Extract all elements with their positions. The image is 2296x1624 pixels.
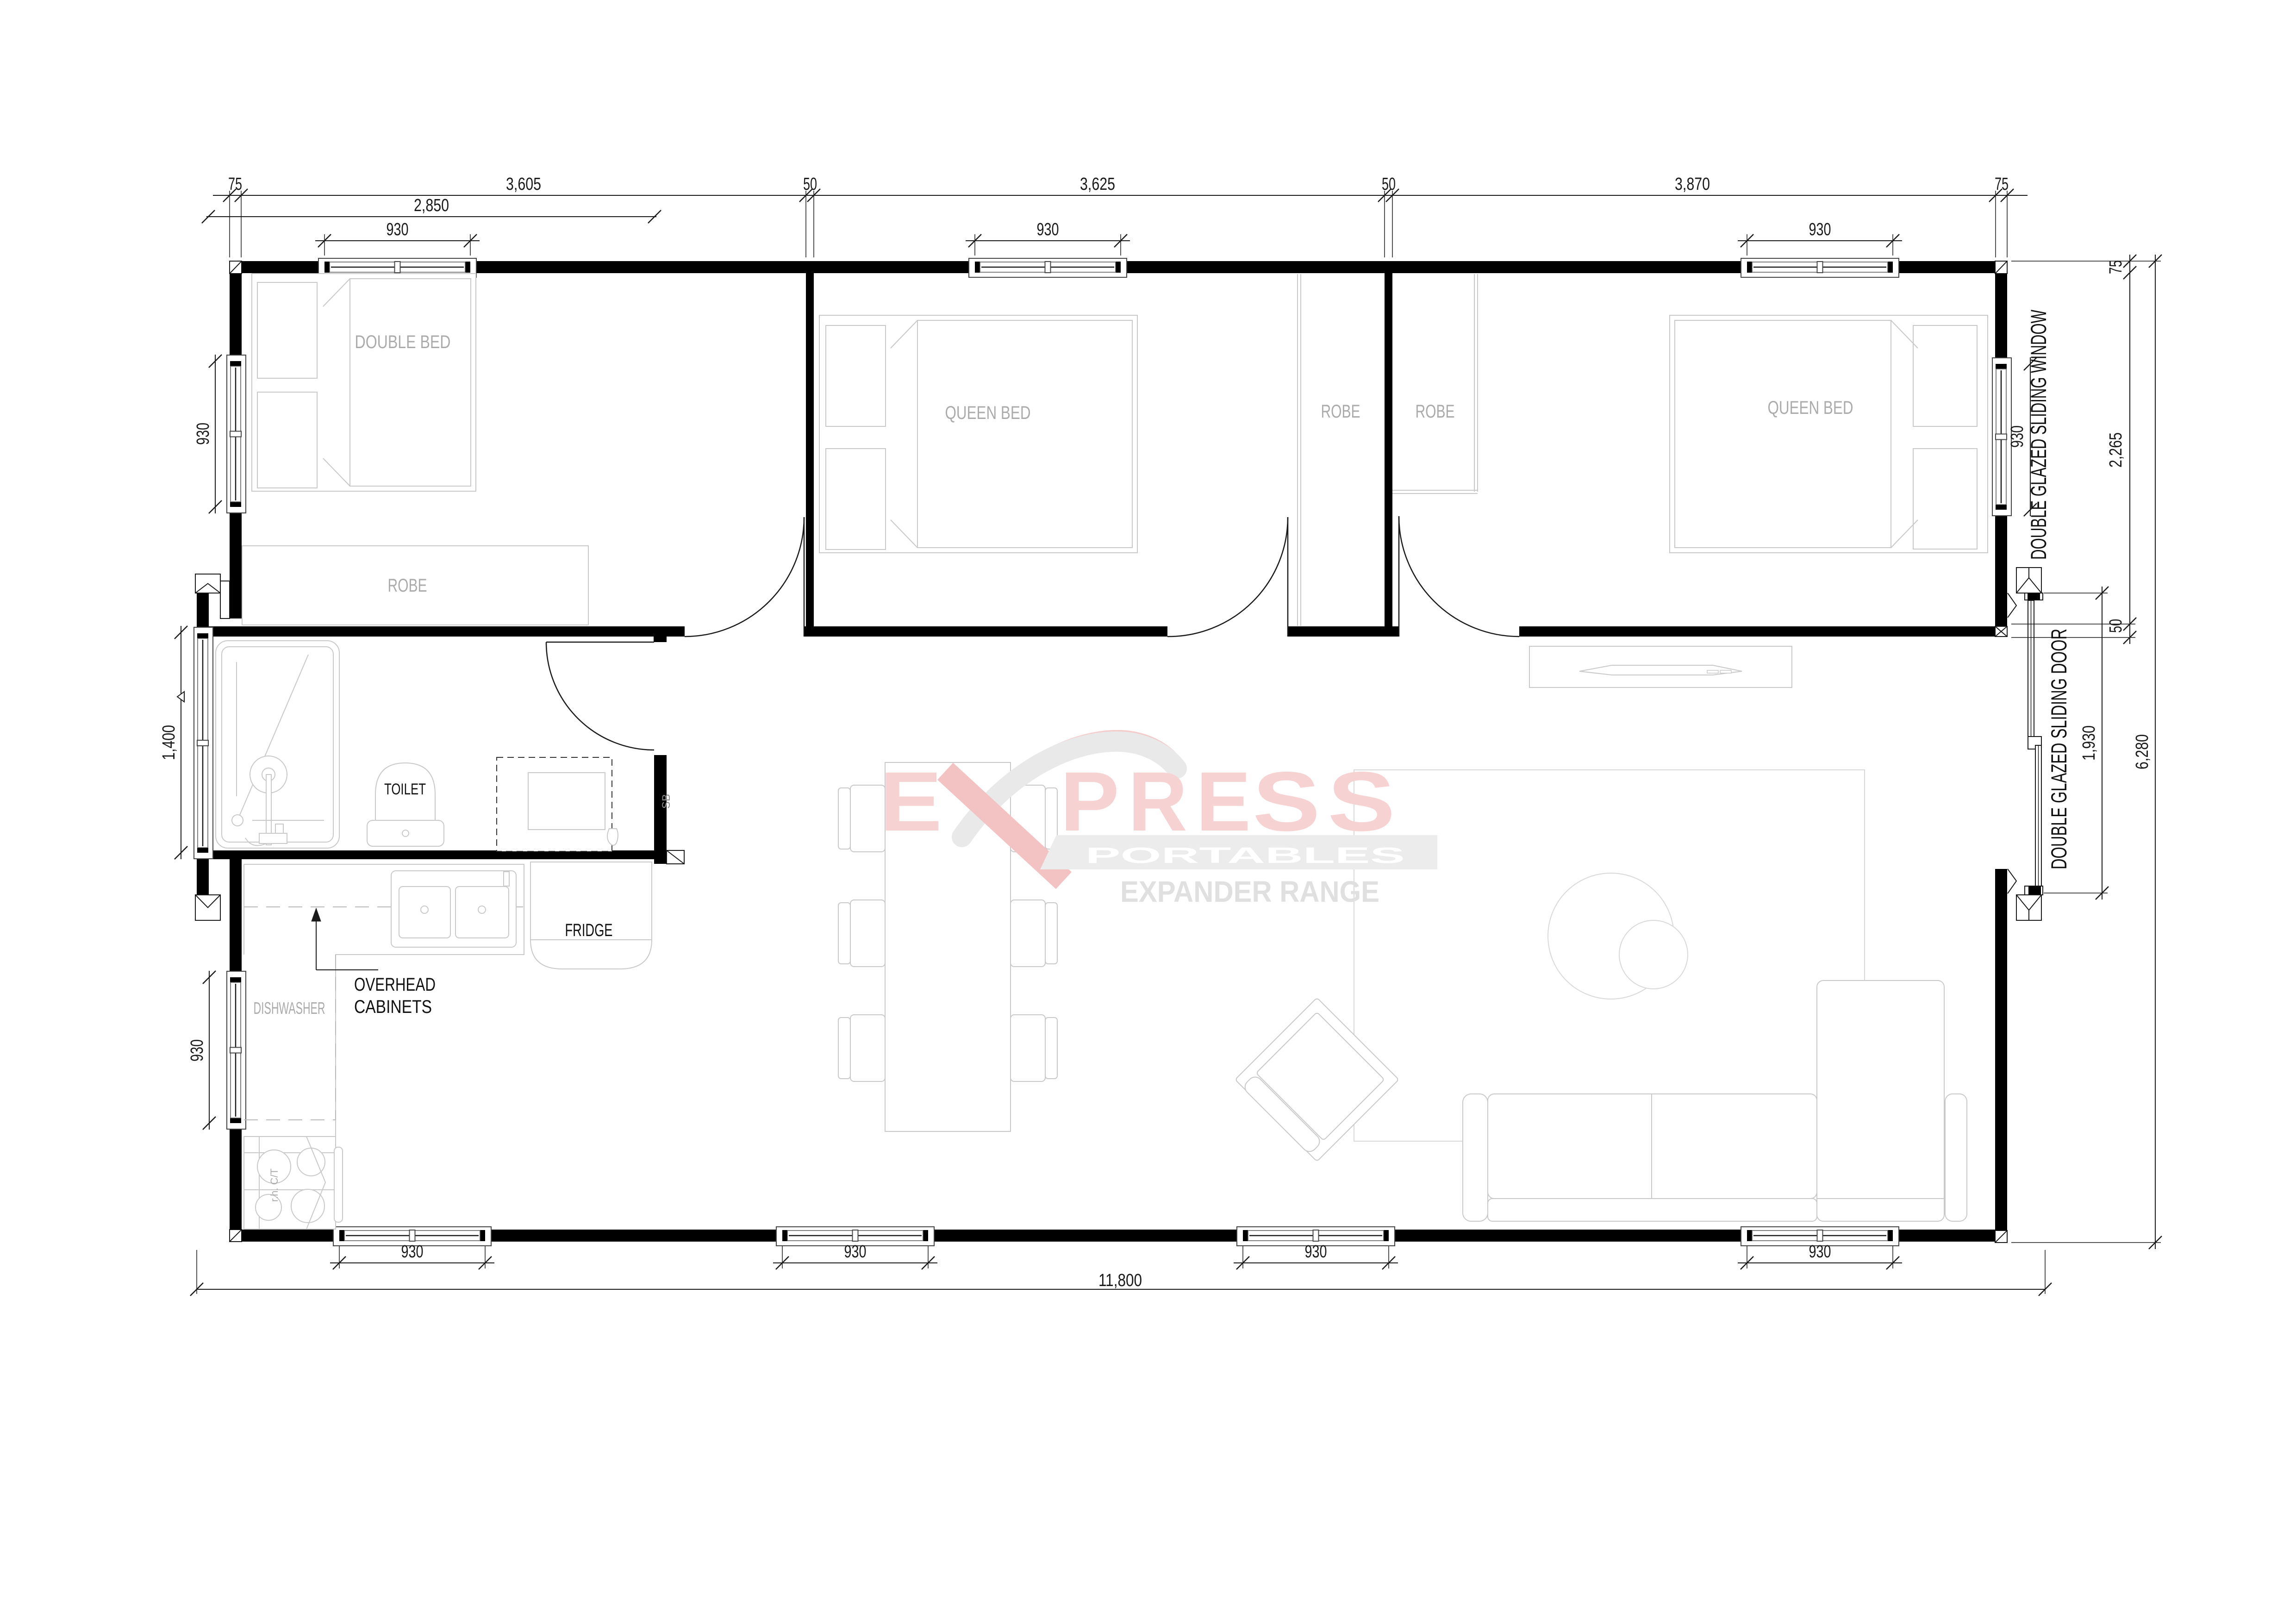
svg-text:ROBE: ROBE [1321,401,1360,422]
svg-text:DOUBLE GLAZED SLIDING WINDOW: DOUBLE GLAZED SLIDING WINDOW [2026,310,2051,560]
svg-text:OVERHEAD: OVERHEAD [354,974,436,995]
svg-text:E: E [880,754,942,849]
svg-text:DOUBLE GLAZED SLIDING DOOR: DOUBLE GLAZED SLIDING DOOR [2046,629,2071,869]
svg-text:1,930: 1,930 [2079,725,2099,761]
svg-text:EXPANDER RANGE: EXPANDER RANGE [1120,875,1379,908]
svg-text:930: 930 [1809,1242,1831,1262]
svg-text:CABINETS: CABINETS [354,997,432,1017]
svg-text:75: 75 [1995,175,2009,194]
svg-text:3,870: 3,870 [1675,175,1710,194]
svg-text:2,850: 2,850 [414,196,449,215]
svg-text:930: 930 [187,1039,207,1062]
svg-text:S: S [1253,754,1320,849]
svg-text:TOILET: TOILET [384,781,426,798]
svg-text:930: 930 [401,1242,424,1262]
svg-text:930: 930 [1305,1242,1327,1262]
svg-text:1,400: 1,400 [159,725,179,760]
svg-text:ROBE: ROBE [388,575,427,596]
svg-text:11,800: 11,800 [1098,1271,1142,1290]
svg-text:DOUBLE BED: DOUBLE BED [355,332,451,352]
svg-text:930: 930 [193,423,213,445]
svg-text:3,625: 3,625 [1080,175,1115,194]
svg-text:3,605: 3,605 [506,175,541,194]
svg-text:ROBE: ROBE [1416,401,1455,422]
svg-text:QUEEN BED: QUEEN BED [1768,398,1853,418]
svg-text:75: 75 [228,175,242,194]
svg-text:DISHWASHER: DISHWASHER [254,999,325,1018]
svg-text:50: 50 [2106,619,2126,633]
svg-text:50: 50 [1382,175,1396,194]
svg-text:930: 930 [844,1242,867,1262]
svg-text:R: R [1128,754,1187,849]
svg-text:P: P [1060,754,1119,849]
svg-text:FRIDGE: FRIDGE [565,921,613,940]
svg-text:930: 930 [2008,425,2027,448]
svg-text:930: 930 [1037,220,1059,239]
svg-text:930: 930 [387,220,409,239]
svg-text:2,265: 2,265 [2106,432,2126,468]
svg-text:6,280: 6,280 [2133,734,2152,769]
svg-text:75: 75 [2106,260,2126,274]
svg-text:50: 50 [803,175,817,194]
svg-text:r.h. C/T: r.h. C/T [268,1168,280,1202]
svg-text:E: E [1196,754,1251,849]
svg-text:QUEEN BED: QUEEN BED [945,403,1031,423]
svg-text:PORTABLES: PORTABLES [1086,843,1405,868]
svg-text:S: S [1328,754,1395,849]
svg-text:SB: SB [660,794,673,809]
svg-text:930: 930 [1809,220,1831,239]
